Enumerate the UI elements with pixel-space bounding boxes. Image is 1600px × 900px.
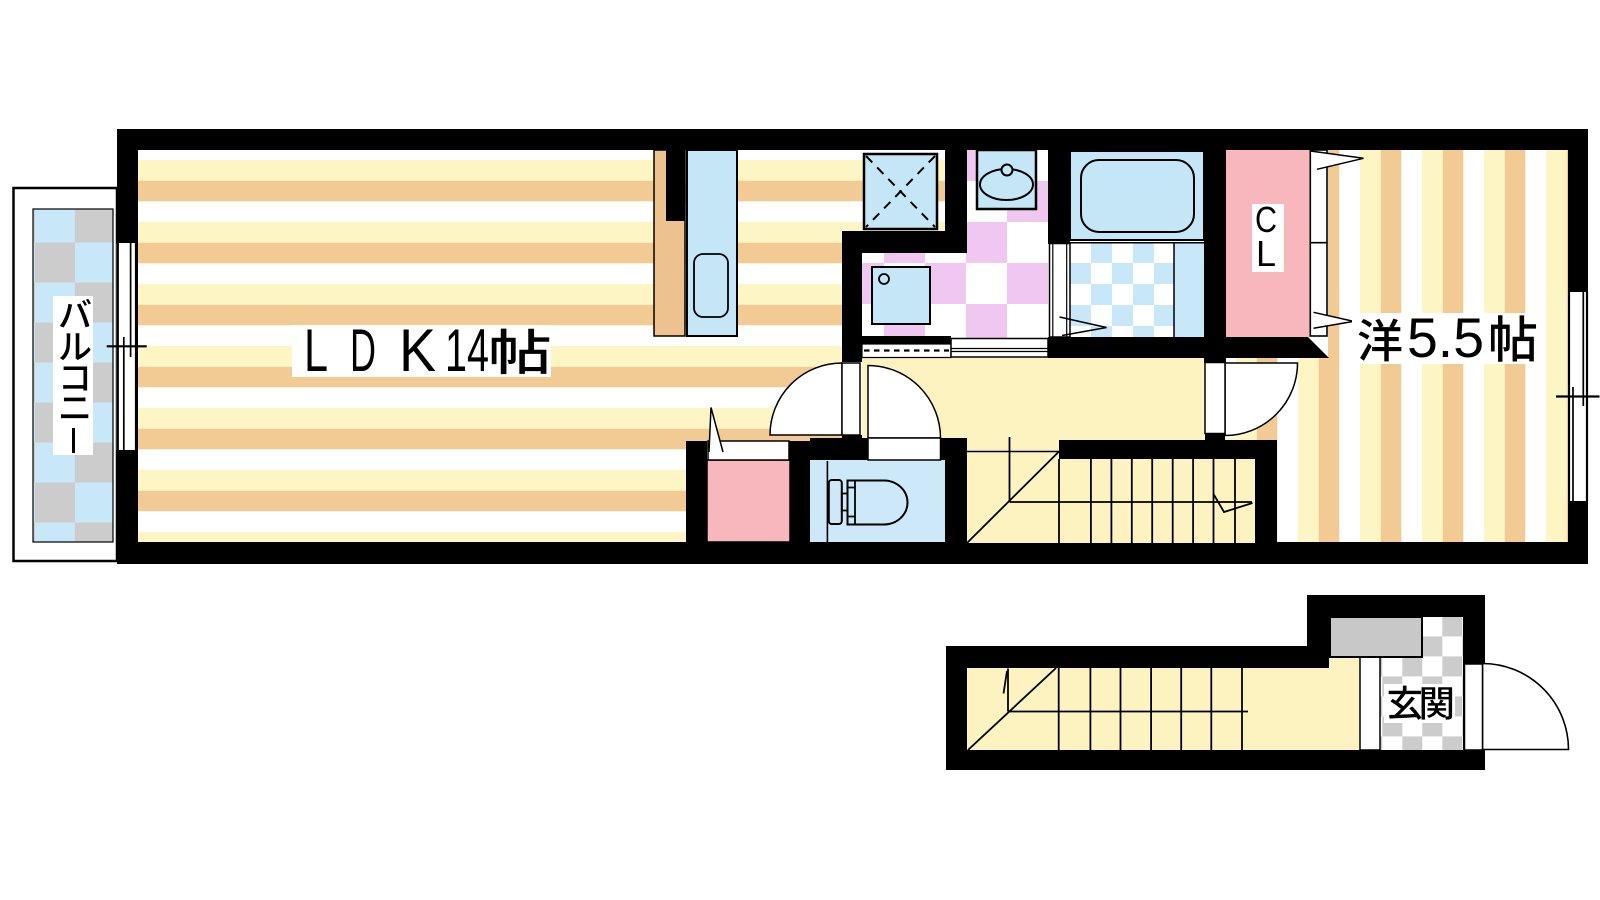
svg-text:L: L: [1256, 233, 1276, 274]
svg-text:14: 14: [445, 317, 489, 384]
svg-text:K: K: [399, 317, 436, 384]
svg-text:5.5: 5.5: [1407, 306, 1484, 369]
svg-text:D: D: [350, 317, 376, 384]
svg-text:L: L: [304, 317, 328, 384]
